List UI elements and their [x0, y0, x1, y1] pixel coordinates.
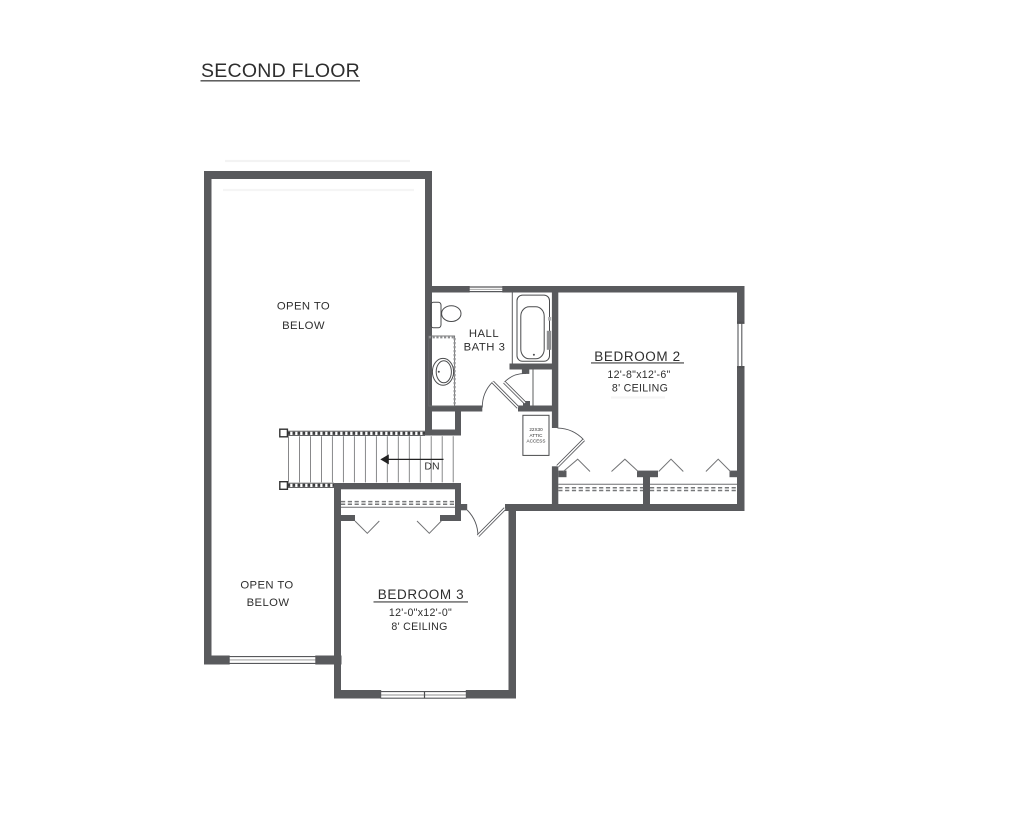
svg-text:OPEN TO: OPEN TO [240, 580, 293, 592]
svg-text:BEDROOM 3: BEDROOM 3 [378, 587, 464, 602]
svg-text:ACCESS: ACCESS [527, 438, 546, 443]
svg-text:ATTIC: ATTIC [530, 433, 544, 438]
svg-text:22X30: 22X30 [529, 427, 543, 432]
svg-text:SECOND FLOOR: SECOND FLOOR [201, 60, 360, 82]
svg-text:BEDROOM 2: BEDROOM 2 [594, 349, 680, 364]
svg-text:HALL: HALL [469, 328, 499, 340]
svg-text:8' CEILING: 8' CEILING [612, 383, 668, 395]
svg-text:BATH 3: BATH 3 [464, 341, 506, 353]
svg-text:DN: DN [424, 460, 439, 472]
svg-text:BELOW: BELOW [247, 597, 290, 609]
svg-text:12'-0"x12'-0": 12'-0"x12'-0" [389, 607, 452, 619]
svg-text:BELOW: BELOW [282, 320, 325, 332]
svg-text:12'-8"x12'-6": 12'-8"x12'-6" [607, 369, 670, 381]
svg-text:8' CEILING: 8' CEILING [391, 621, 447, 633]
svg-text:OPEN TO: OPEN TO [277, 301, 330, 313]
